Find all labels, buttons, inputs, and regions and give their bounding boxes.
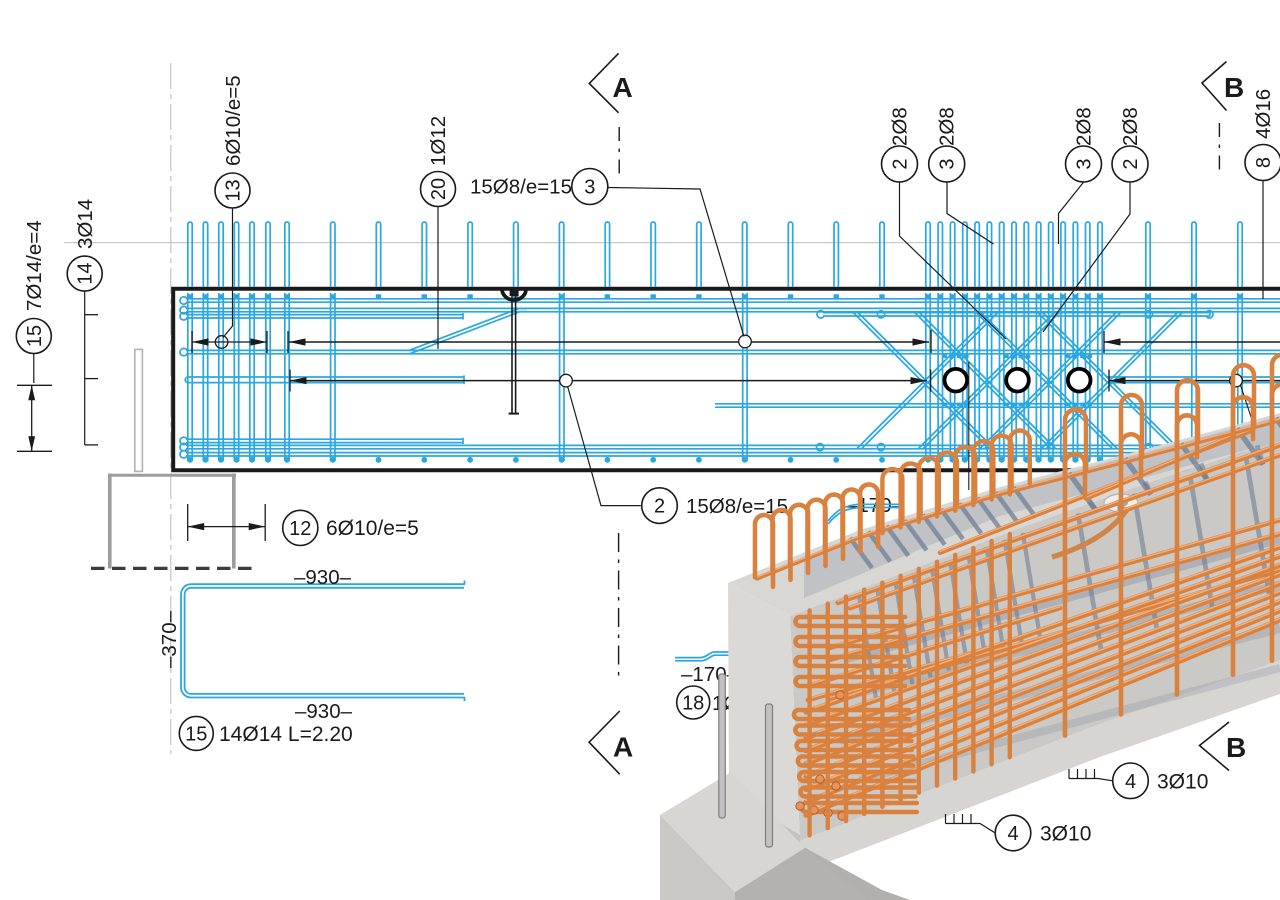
svg-text:3Ø14: 3Ø14 bbox=[74, 199, 97, 249]
svg-text:14: 14 bbox=[75, 262, 97, 284]
svg-text:12: 12 bbox=[289, 518, 311, 540]
svg-text:A: A bbox=[613, 732, 633, 763]
svg-text:1Ø12: 1Ø12 bbox=[427, 116, 450, 166]
svg-text:15: 15 bbox=[24, 325, 46, 347]
svg-text:2Ø8: 2Ø8 bbox=[889, 107, 912, 146]
svg-text:4: 4 bbox=[1007, 823, 1018, 845]
svg-text:B: B bbox=[1226, 732, 1246, 763]
svg-text:2: 2 bbox=[1120, 158, 1142, 169]
svg-text:3Ø10: 3Ø10 bbox=[1040, 823, 1091, 846]
svg-text:B: B bbox=[1224, 72, 1244, 103]
svg-text:15Ø8/e=15: 15Ø8/e=15 bbox=[470, 176, 572, 199]
svg-text:A: A bbox=[613, 72, 633, 103]
svg-text:8: 8 bbox=[1253, 157, 1275, 168]
svg-text:6Ø10/e=5: 6Ø10/e=5 bbox=[222, 75, 245, 166]
svg-text:–370–: –370– bbox=[158, 610, 181, 668]
svg-text:14Ø14 L=2.20: 14Ø14 L=2.20 bbox=[219, 723, 353, 746]
svg-text:4: 4 bbox=[1125, 771, 1136, 793]
svg-text:2: 2 bbox=[654, 496, 665, 518]
svg-text:6Ø10/e=5: 6Ø10/e=5 bbox=[326, 517, 419, 540]
svg-text:3Ø10: 3Ø10 bbox=[1157, 771, 1208, 794]
svg-text:7Ø14/e=4: 7Ø14/e=4 bbox=[23, 220, 46, 311]
svg-text:20: 20 bbox=[428, 178, 450, 200]
svg-text:3: 3 bbox=[584, 177, 595, 199]
svg-text:2Ø8: 2Ø8 bbox=[1073, 107, 1096, 146]
svg-text:–930–: –930– bbox=[295, 700, 353, 723]
svg-text:2: 2 bbox=[890, 158, 912, 169]
svg-text:13: 13 bbox=[223, 179, 245, 201]
svg-text:3: 3 bbox=[1074, 158, 1096, 169]
svg-text:2Ø8: 2Ø8 bbox=[936, 107, 959, 146]
svg-text:2Ø8: 2Ø8 bbox=[1119, 107, 1142, 146]
svg-text:18: 18 bbox=[682, 693, 704, 715]
svg-text:15: 15 bbox=[185, 723, 207, 745]
svg-text:–930–: –930– bbox=[294, 566, 352, 589]
svg-text:4Ø16: 4Ø16 bbox=[1252, 89, 1275, 139]
svg-text:3: 3 bbox=[937, 158, 959, 169]
